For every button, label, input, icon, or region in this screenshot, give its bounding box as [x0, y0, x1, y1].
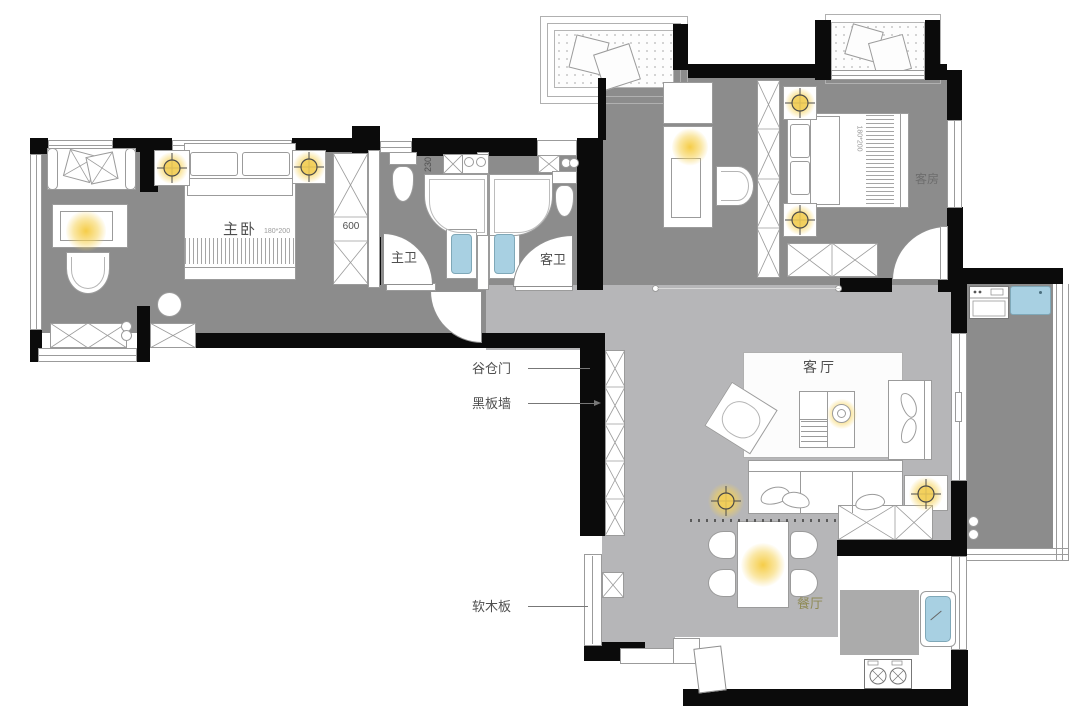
laundry-sink: [1010, 286, 1051, 315]
wall: [951, 650, 968, 706]
ceiling-light-icon: [911, 479, 941, 509]
room-label: 客厅: [803, 360, 837, 374]
blackboard-wall-shelf: [605, 350, 625, 536]
counter-width-label: 230: [424, 157, 433, 172]
callout-cork-board: 软木板: [472, 600, 511, 613]
wall: [950, 268, 1063, 284]
floor-drain: [968, 516, 979, 527]
bed-blanket: [866, 115, 894, 206]
bed-size-label: 180*200: [264, 228, 290, 235]
wardrobe-depth-label: 600: [336, 222, 366, 232]
sofa-armrest: [47, 148, 58, 190]
wall: [688, 64, 831, 78]
cork-board-wall: [584, 554, 602, 646]
armchair-cushion: [716, 395, 767, 445]
sink-circle: [569, 158, 579, 168]
room-label: 主卫: [391, 251, 417, 264]
wall: [947, 70, 962, 122]
side-window: [30, 154, 42, 330]
bath-cabinet: [443, 154, 463, 174]
cork-shelf: [602, 572, 624, 598]
callout-leader-line: [528, 368, 590, 369]
door-leaf: [940, 226, 948, 280]
bed-foot-line: [185, 267, 295, 268]
wall: [683, 689, 958, 706]
door-handle: [955, 392, 962, 422]
toilet-tank: [552, 171, 577, 184]
ceiling-light-icon: [294, 152, 324, 182]
ceiling-light-icon: [711, 486, 741, 516]
wall: [598, 78, 606, 140]
guest-bath-sill: [537, 140, 577, 156]
ceiling-light-icon: [785, 88, 815, 118]
toilet-tank: [389, 152, 417, 165]
guest-low-cabinet: [787, 243, 878, 277]
wall: [145, 333, 605, 348]
ceiling-light-icon: [785, 205, 815, 235]
sink-circle: [476, 157, 486, 167]
laundry-sink-drain: [1039, 291, 1042, 294]
balcony-frame-line: [967, 560, 1069, 561]
callout-barn-door: 谷仓门: [472, 362, 511, 375]
leader-arrow: [594, 400, 601, 406]
guest-wardrobe: [757, 80, 780, 278]
lower-window: [38, 348, 137, 362]
room-label: 主卧: [223, 222, 257, 237]
washbasin: [494, 234, 515, 274]
bed-pillow: [242, 152, 290, 176]
dining-chair: [708, 531, 736, 559]
floor-transition-dotted-line: [690, 519, 838, 522]
dining-chair: [708, 569, 736, 597]
balcony-frame-line: [967, 554, 1069, 555]
wall: [30, 138, 48, 154]
desk-chair: [716, 166, 754, 206]
bed-headband: [187, 178, 293, 196]
sink-circle: [464, 157, 474, 167]
entry-side-wall: [620, 648, 674, 664]
two-burner-stove-icon: [864, 659, 912, 689]
floor-plan: 主卧 180*200 600 230 主卫: [0, 0, 1080, 728]
floor-drain: [968, 529, 979, 540]
table-tray: [801, 421, 827, 446]
room-label: 客卫: [540, 253, 566, 266]
wall: [837, 540, 958, 556]
wardrobe-bath-wall: [368, 150, 380, 288]
room-transition-line: [657, 288, 840, 289]
bed-pillow: [790, 161, 810, 195]
room-label: 客房: [915, 173, 939, 185]
callout-leader-line: [528, 606, 588, 607]
sofa-back-line: [749, 471, 902, 472]
wall: [951, 284, 967, 333]
kitchen-counter: [840, 590, 919, 655]
low-cabinet: [50, 323, 127, 348]
table-lamp-inner: [837, 409, 846, 418]
sofa-armrest: [125, 148, 136, 190]
balcony-frame-line: [1068, 284, 1069, 560]
cork-board-line: [592, 556, 593, 644]
wall: [938, 278, 951, 292]
table-divider: [800, 419, 827, 420]
washing-machine-icon: [969, 286, 1009, 319]
balcony-frame-line: [967, 548, 1069, 549]
room-label: 餐厅: [797, 597, 823, 610]
guest-room-window: [947, 120, 962, 208]
master-wardrobe: [333, 153, 368, 285]
wall: [577, 138, 603, 290]
wall: [673, 24, 688, 70]
study-cabinet: [663, 82, 713, 124]
bed-size-label: 180*200: [856, 125, 863, 151]
bed-blanket: [185, 238, 295, 264]
entry-door-leaf: [693, 645, 726, 693]
double-basin-icon: [121, 330, 132, 341]
desk-tray: [671, 158, 701, 218]
washbasin: [451, 234, 472, 274]
callout-leader-line: [528, 403, 594, 404]
desk-lamp-glow: [66, 210, 106, 252]
balcony-frame-line: [1056, 284, 1057, 560]
sofa-back-line: [924, 381, 925, 459]
wall: [840, 278, 892, 292]
sofa-divider: [852, 472, 853, 513]
wall: [815, 20, 831, 80]
laundry-balcony-floor: [967, 284, 1053, 548]
bed-foot-bench: [900, 113, 909, 208]
dining-light-glow: [741, 543, 785, 587]
low-cabinet: [150, 323, 196, 348]
desk-lamp-glow: [672, 128, 708, 166]
callout-blackboard-wall: 黑板墙: [472, 397, 511, 410]
round-stool: [157, 292, 182, 317]
bed-pillow: [190, 152, 238, 176]
bed-headband: [810, 116, 840, 205]
wall: [925, 64, 947, 80]
ceiling-light-icon: [157, 153, 187, 183]
sofa-pillow: [85, 151, 118, 184]
guest-room-window: [831, 70, 925, 80]
balcony-frame-line: [1062, 284, 1063, 560]
barn-door-wall: [580, 348, 605, 536]
bed-pillow: [790, 124, 810, 158]
